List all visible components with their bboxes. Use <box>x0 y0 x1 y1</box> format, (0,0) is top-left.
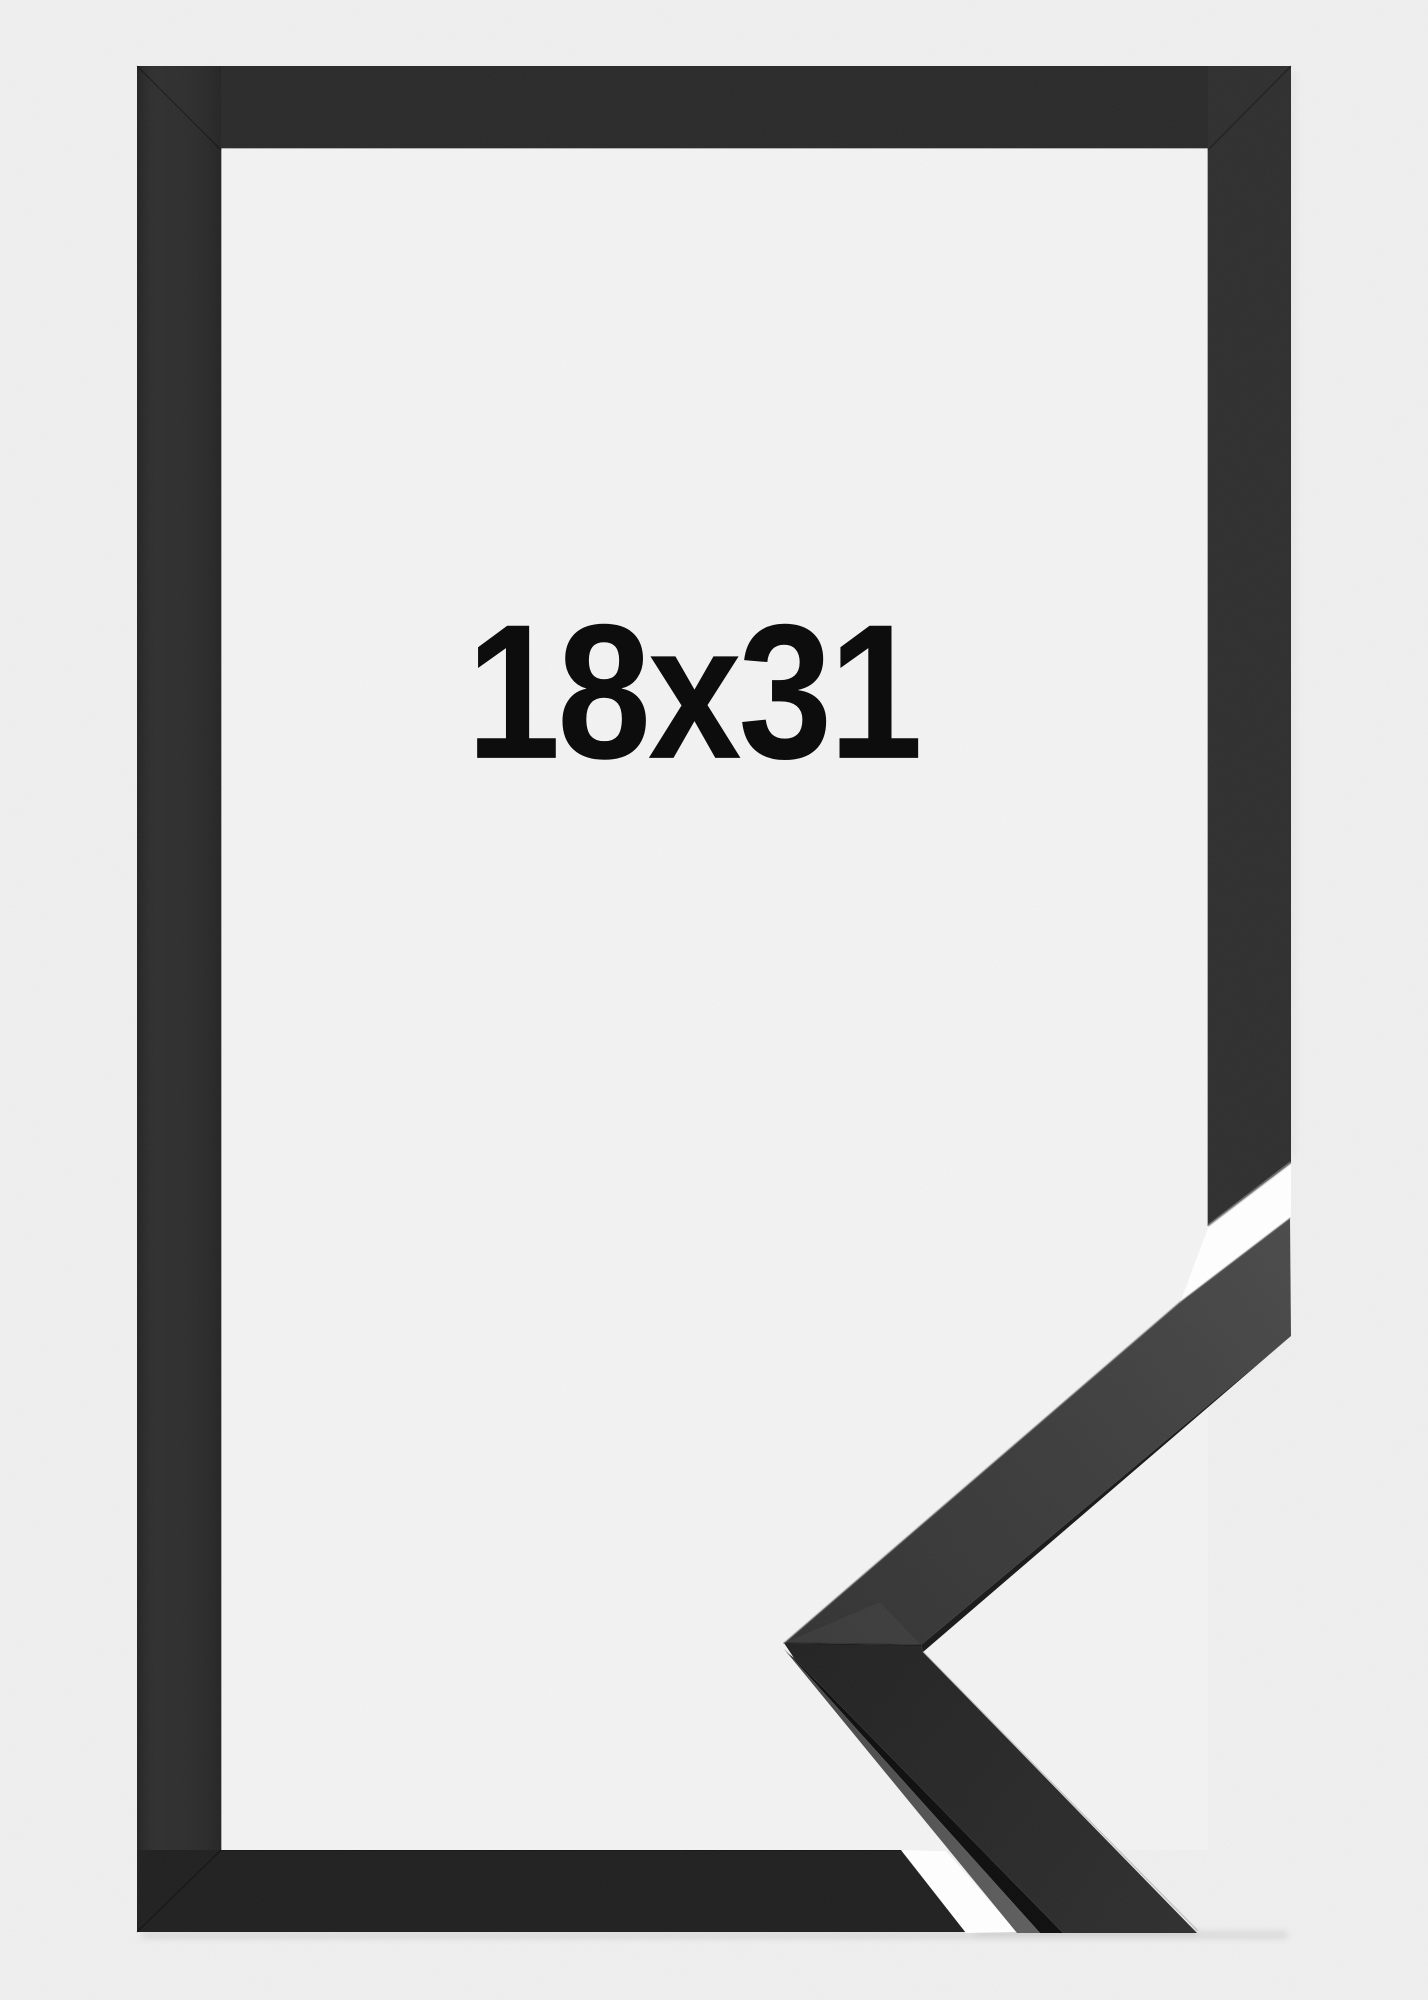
photo-grain <box>0 0 1428 2000</box>
frame-size-label: 18x31 <box>467 581 920 802</box>
product-image-black-frame: 18x31 <box>0 0 1428 2000</box>
frame-photo-graphic <box>0 0 1428 2000</box>
